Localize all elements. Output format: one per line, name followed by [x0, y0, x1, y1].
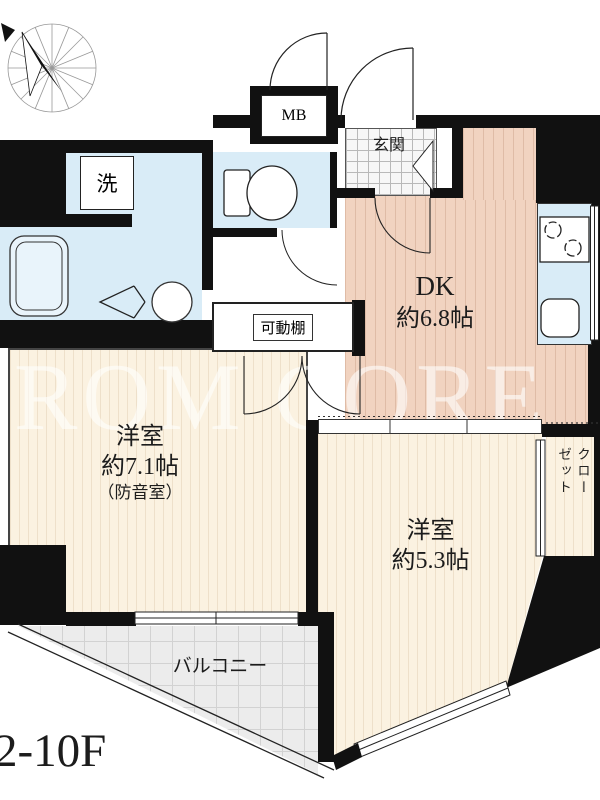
balcony-label: バルコニー: [145, 655, 295, 679]
dk-label: DK 約6.8帖: [355, 270, 515, 334]
sliding-door-panels: [318, 417, 542, 435]
closet-window-icon: [536, 440, 545, 556]
closet-label-line1: クロー: [572, 447, 591, 543]
balcony-window-icon: [135, 612, 298, 624]
hall-door-icon: [375, 198, 430, 253]
bedroom-second-label: 洋室 約5.3帖: [358, 516, 503, 576]
entrance-door-icon: [341, 48, 413, 120]
bedroom-main-label: 洋室 約7.1帖 （防音室）: [55, 422, 225, 503]
toilet-icon: [224, 166, 297, 220]
floor-plan: ROM CORE MB 洗 可動棚: [0, 0, 600, 800]
double-door-icon: [244, 356, 360, 414]
closet-label-line2: ゼット: [553, 447, 572, 543]
washbasin-icon: [152, 282, 192, 322]
diagonal-wall: [332, 556, 600, 770]
bedroom-second-name: 洋室: [358, 516, 503, 546]
toilet-door-icon: [282, 230, 337, 285]
dk-name: DK: [355, 270, 515, 304]
stove-icon: [540, 217, 589, 262]
kitchen-window-icon: [591, 206, 599, 340]
bedroom-main-note: （防音室）: [55, 482, 225, 503]
bedroom-second-size: 約5.3帖: [358, 546, 503, 576]
folding-door-icon: [100, 286, 145, 318]
meter-box-door-icon: [270, 33, 327, 90]
dk-size: 約6.8帖: [355, 304, 515, 334]
plan-linework: [0, 0, 600, 800]
bedroom-main-size: 約7.1帖: [55, 452, 225, 482]
sink-icon: [541, 299, 579, 337]
bathtub-icon: [10, 236, 68, 316]
compass-icon: [1, 23, 96, 112]
closet-label: クロー ゼット: [551, 447, 591, 543]
bedroom-main-name: 洋室: [55, 422, 225, 452]
entrance-label: 玄関: [345, 136, 433, 156]
floor-number-label: 2-10F: [0, 722, 144, 781]
